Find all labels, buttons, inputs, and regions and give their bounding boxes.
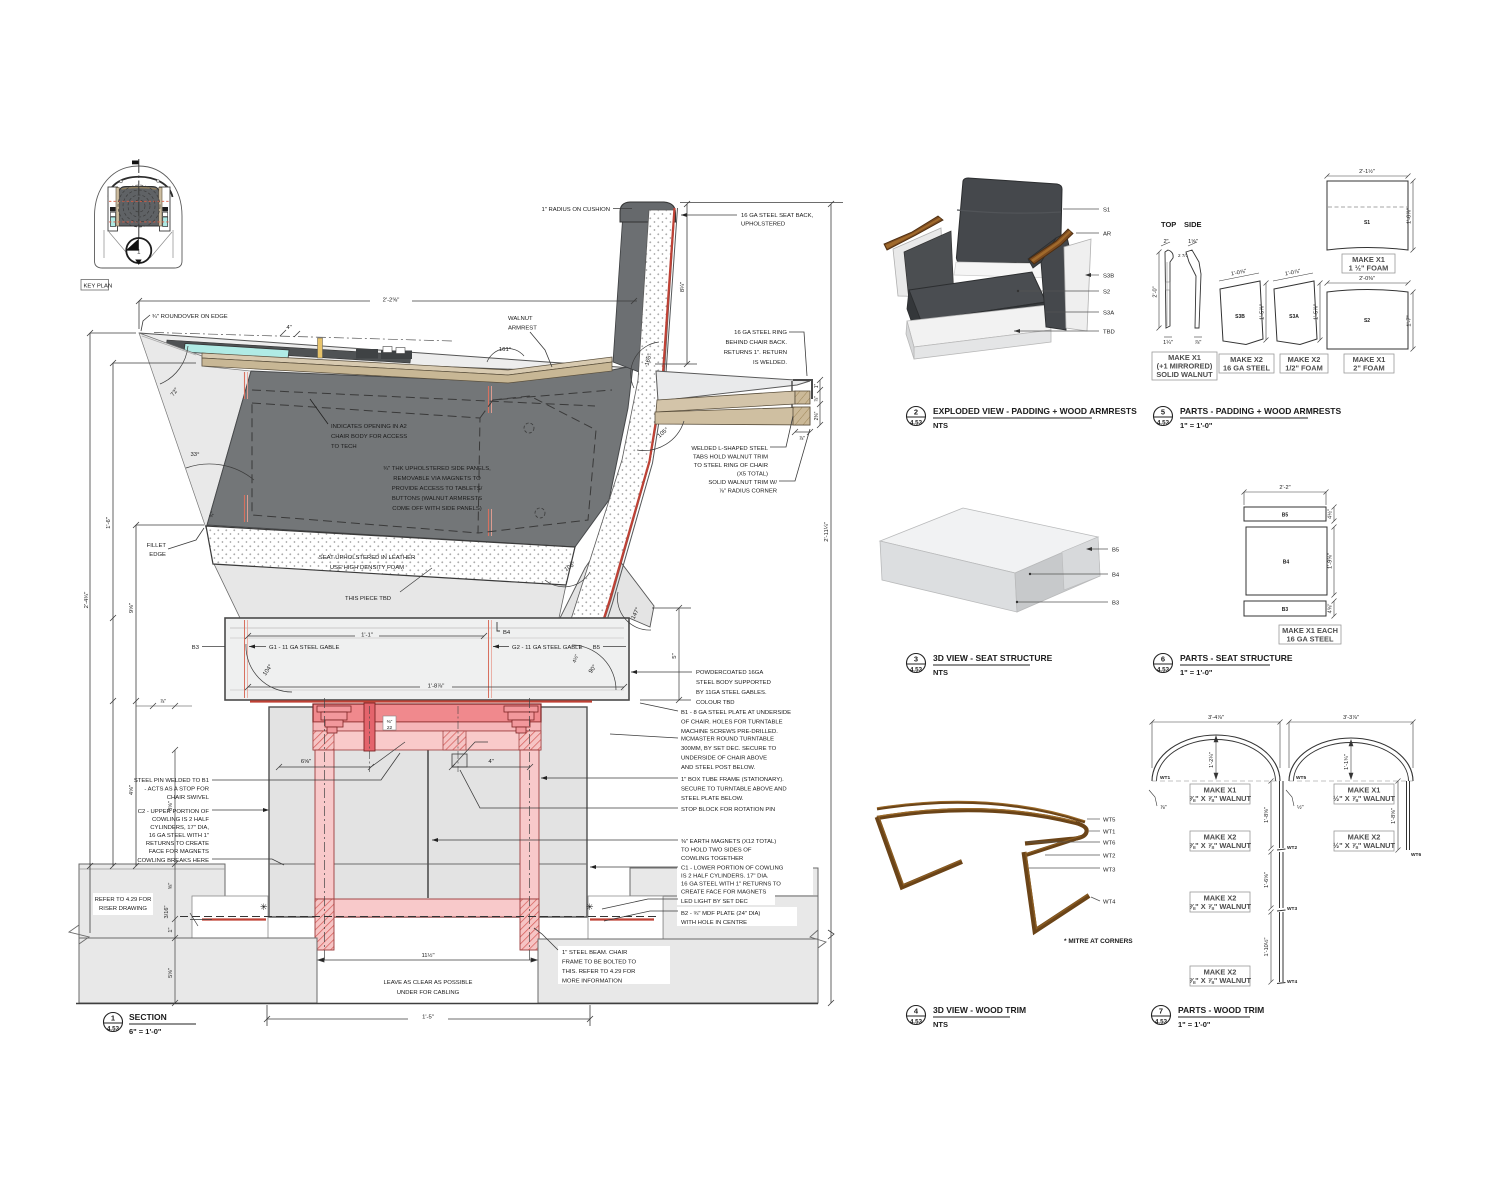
svg-text:TBD: TBD <box>1103 330 1115 336</box>
svg-text:CREATE FACE FOR MAGNETS: CREATE FACE FOR MAGNETS <box>681 890 766 896</box>
svg-text:1'-10½": 1'-10½" <box>1263 938 1270 957</box>
svg-text:PARTS - PADDING + WOOD ARMREST: PARTS - PADDING + WOOD ARMRESTS <box>1180 406 1341 416</box>
svg-text:C1 - LOWER PORTION OF COWLING: C1 - LOWER PORTION OF COWLING <box>681 866 784 872</box>
svg-text:4.53: 4.53 <box>910 1019 923 1026</box>
svg-text:RETURNS TO CREATE: RETURNS TO CREATE <box>146 841 209 847</box>
svg-text:½" X ⅞" WALNUT: ½" X ⅞" WALNUT <box>1333 841 1396 850</box>
svg-text:1'-9⅝": 1'-9⅝" <box>1328 553 1334 569</box>
svg-text:B4: B4 <box>503 630 511 636</box>
svg-text:⅞" X ⅞" WALNUT: ⅞" X ⅞" WALNUT <box>1189 794 1252 803</box>
svg-text:1'-8⅝": 1'-8⅝" <box>1264 807 1270 823</box>
svg-text:LEAVE AS CLEAR AS POSSIBLE: LEAVE AS CLEAR AS POSSIBLE <box>384 980 473 986</box>
svg-text:⅞" X ⅞" WALNUT: ⅞" X ⅞" WALNUT <box>1189 976 1252 985</box>
svg-text:WALNUT: WALNUT <box>508 316 533 322</box>
svg-text:LED LIGHT BY SET DEC: LED LIGHT BY SET DEC <box>681 899 749 905</box>
svg-text:SOLID WALNUT: SOLID WALNUT <box>1156 370 1213 379</box>
svg-text:2'-0⅜": 2'-0⅜" <box>1359 276 1375 282</box>
svg-text:3/16": 3/16" <box>164 906 170 919</box>
svg-text:COLOUR TBD: COLOUR TBD <box>696 700 735 706</box>
svg-text:B5: B5 <box>1112 548 1120 554</box>
svg-text:NTS: NTS <box>933 668 948 677</box>
svg-text:✳: ✳ <box>260 902 268 912</box>
svg-text:3D VIEW - WOOD TRIM: 3D VIEW - WOOD TRIM <box>933 1005 1026 1015</box>
svg-text:S3A: S3A <box>1289 314 1299 320</box>
svg-text:STEEL PLATE BELOW.: STEEL PLATE BELOW. <box>681 796 744 802</box>
svg-text:4.53: 4.53 <box>910 667 923 674</box>
svg-text:3D VIEW - SEAT STRUCTURE: 3D VIEW - SEAT STRUCTURE <box>933 653 1053 663</box>
svg-text:TOP: TOP <box>1161 220 1176 229</box>
svg-text:STOP BLOCK FOR ROTATION PIN: STOP BLOCK FOR ROTATION PIN <box>681 807 775 813</box>
svg-text:B5: B5 <box>593 645 601 651</box>
svg-text:1/2" FOAM: 1/2" FOAM <box>1285 364 1323 373</box>
svg-text:WT3: WT3 <box>1103 868 1116 874</box>
svg-text:1" RADIUS ON CUSHION: 1" RADIUS ON CUSHION <box>541 207 610 213</box>
svg-text:4.53: 4.53 <box>107 1026 120 1033</box>
svg-text:4": 4" <box>488 759 493 765</box>
svg-text:BY 11GA STEEL GABLES.: BY 11GA STEEL GABLES. <box>696 690 767 696</box>
svg-text:✳: ✳ <box>586 902 594 912</box>
svg-text:4.53: 4.53 <box>910 420 923 427</box>
svg-text:COWLING BREAKS HERE: COWLING BREAKS HERE <box>137 858 209 864</box>
svg-text:B2 - ¾" MDF PLATE (24" DIA): B2 - ¾" MDF PLATE (24" DIA) <box>681 911 760 917</box>
svg-text:16 GA STEEL: 16 GA STEEL <box>1223 364 1270 373</box>
svg-text:SEAT UPHOLSTERED IN LEATHER: SEAT UPHOLSTERED IN LEATHER <box>319 555 416 561</box>
svg-text:MORE INFORMATION: MORE INFORMATION <box>562 979 622 985</box>
svg-text:IS 2 HALF CYLINDERS. 17" DIA.: IS 2 HALF CYLINDERS. 17" DIA. <box>681 874 769 880</box>
svg-text:WT6: WT6 <box>1411 852 1421 858</box>
svg-text:UNDER FOR CABLING: UNDER FOR CABLING <box>397 990 460 996</box>
svg-text:POWDERCOATED 16GA: POWDERCOATED 16GA <box>696 670 763 676</box>
svg-text:RISER DRAWING: RISER DRAWING <box>99 906 147 912</box>
svg-text:16 GA STEEL: 16 GA STEEL <box>1287 635 1334 644</box>
svg-text:3: 3 <box>914 655 918 664</box>
svg-text:3'-4⅞": 3'-4⅞" <box>1208 715 1224 721</box>
svg-text:4½": 4½" <box>1327 509 1334 519</box>
svg-text:WT6: WT6 <box>1103 841 1116 847</box>
svg-text:REFER TO 4.29 FOR: REFER TO 4.29 FOR <box>95 897 152 903</box>
svg-text:EDGE: EDGE <box>149 552 166 558</box>
svg-text:STEEL BODY SUPPORTED: STEEL BODY SUPPORTED <box>696 680 771 686</box>
svg-text:COME OFF WITH SIDE PANELS): COME OFF WITH SIDE PANELS) <box>392 506 482 512</box>
svg-text:16 GA STEEL WITH 1" RETURNS TO: 16 GA STEEL WITH 1" RETURNS TO <box>681 882 781 888</box>
svg-text:UPHOLSTERED: UPHOLSTERED <box>741 222 785 228</box>
svg-text:1" = 1'-0": 1" = 1'-0" <box>1178 1020 1211 1029</box>
svg-text:1" = 1'-0": 1" = 1'-0" <box>1180 668 1213 677</box>
svg-text:2⅜": 2⅜" <box>814 411 820 420</box>
svg-text:WT4: WT4 <box>1103 900 1116 906</box>
svg-text:⅞": ⅞" <box>1195 340 1202 346</box>
svg-text:5: 5 <box>1161 408 1165 417</box>
svg-text:1: 1 <box>111 1014 115 1023</box>
svg-text:G1 - 11 GA STEEL GABLE: G1 - 11 GA STEEL GABLE <box>269 645 339 651</box>
svg-text:161°: 161° <box>499 347 511 353</box>
svg-text:16 GA STEEL RING: 16 GA STEEL RING <box>734 330 787 336</box>
svg-text:COWLING TOGETHER: COWLING TOGETHER <box>681 856 743 862</box>
svg-text:⅞": ⅞" <box>160 699 166 705</box>
svg-text:1": 1" <box>168 927 174 932</box>
svg-text:2: 2 <box>914 408 918 417</box>
svg-text:WT3: WT3 <box>1287 906 1297 912</box>
svg-text:SECTION: SECTION <box>129 1012 167 1022</box>
svg-text:* MITRE AT CORNERS: * MITRE AT CORNERS <box>1064 938 1133 945</box>
svg-text:FACE FOR MAGNETS: FACE FOR MAGNETS <box>149 849 209 855</box>
svg-text:2'-2⅝": 2'-2⅝" <box>383 298 400 304</box>
svg-text:⅞" X ⅞" WALNUT: ⅞" X ⅞" WALNUT <box>1189 841 1252 850</box>
svg-text:2" FOAM: 2" FOAM <box>1353 364 1384 373</box>
svg-text:300MM, BY SET DEC. SECURE TO: 300MM, BY SET DEC. SECURE TO <box>681 746 777 752</box>
svg-text:SOLID WALNUT TRIM W/: SOLID WALNUT TRIM W/ <box>708 480 777 486</box>
svg-text:NTS: NTS <box>933 1020 948 1029</box>
svg-text:1'-1": 1'-1" <box>361 633 373 639</box>
svg-text:⅜" EARTH MAGNETS (X12 TOTAL): ⅜" EARTH MAGNETS (X12 TOTAL) <box>681 839 776 845</box>
svg-text:TABS HOLD WALNUT TRIM: TABS HOLD WALNUT TRIM <box>693 455 768 461</box>
svg-text:BUTTONS (WALNUT ARMRESTS: BUTTONS (WALNUT ARMRESTS <box>392 496 482 502</box>
svg-text:⅞": ⅞" <box>799 436 805 442</box>
svg-text:C2 - UPPER PORTION OF: C2 - UPPER PORTION OF <box>138 809 210 815</box>
svg-text:OF CHAIR. HOLES FOR TURNTABLE: OF CHAIR. HOLES FOR TURNTABLE <box>681 720 783 726</box>
svg-text:TO TECH: TO TECH <box>331 444 357 450</box>
svg-text:PARTS - SEAT STRUCTURE: PARTS - SEAT STRUCTURE <box>1180 653 1293 663</box>
svg-text:S3B: S3B <box>1235 314 1245 320</box>
svg-text:1'-5⅞": 1'-5⅞" <box>1314 304 1320 320</box>
svg-text:1'-5": 1'-5" <box>422 1015 434 1021</box>
svg-text:B3: B3 <box>192 645 200 651</box>
svg-text:B5: B5 <box>1282 513 1289 519</box>
svg-text:1" = 1'-0": 1" = 1'-0" <box>1180 421 1213 430</box>
svg-text:9⅝": 9⅝" <box>129 603 135 613</box>
svg-text:4.53: 4.53 <box>1157 667 1170 674</box>
svg-text:WT1: WT1 <box>1103 830 1115 836</box>
svg-text:USE HIGH DENSITY FOAM: USE HIGH DENSITY FOAM <box>330 565 404 571</box>
svg-text:FRAME TO BE BOLTED TO: FRAME TO BE BOLTED TO <box>562 960 637 966</box>
svg-text:(X5 TOTAL): (X5 TOTAL) <box>737 472 768 478</box>
svg-text:⅞": ⅞" <box>814 396 820 402</box>
svg-text:1" STEEL BEAM. CHAIR: 1" STEEL BEAM. CHAIR <box>562 950 627 956</box>
svg-text:4⅝": 4⅝" <box>1328 604 1334 614</box>
svg-text:1'-1¾": 1'-1¾" <box>1344 754 1350 770</box>
svg-text:½" X ⅞" WALNUT: ½" X ⅞" WALNUT <box>1333 794 1396 803</box>
svg-text:WT4: WT4 <box>1287 979 1297 985</box>
svg-text:5": 5" <box>672 653 678 658</box>
svg-text:SIDE: SIDE <box>1184 220 1202 229</box>
svg-text:1'-5⅞": 1'-5⅞" <box>1260 304 1266 320</box>
svg-text:B3: B3 <box>1282 607 1289 613</box>
svg-text:3'-3⅞": 3'-3⅞" <box>1343 715 1359 721</box>
svg-text:STEEL PIN WELDED TO B1: STEEL PIN WELDED TO B1 <box>134 778 209 784</box>
svg-text:1": 1" <box>814 384 820 389</box>
svg-text:16 GA STEEL SEAT BACK,: 16 GA STEEL SEAT BACK, <box>741 213 814 219</box>
svg-text:REMOVABLE VIA MAGNETS TO: REMOVABLE VIA MAGNETS TO <box>393 476 481 482</box>
svg-text:22: 22 <box>387 725 393 731</box>
svg-text:⅞" RADIUS CORNER: ⅞" RADIUS CORNER <box>719 489 777 495</box>
svg-text:S1: S1 <box>1103 208 1110 214</box>
svg-text:S2: S2 <box>1364 318 1370 324</box>
svg-text:ARMREST: ARMREST <box>508 326 537 332</box>
svg-text:B3: B3 <box>1112 601 1120 607</box>
svg-text:1'-0⅞": 1'-0⅞" <box>1407 208 1413 224</box>
svg-text:8¼": 8¼" <box>680 282 686 292</box>
svg-text:1'-8⅞": 1'-8⅞" <box>428 684 445 690</box>
svg-text:S3B: S3B <box>1103 274 1114 280</box>
svg-text:WT1: WT1 <box>1160 775 1170 781</box>
svg-text:6⅝": 6⅝" <box>301 759 311 765</box>
svg-text:KEY PLAN: KEY PLAN <box>84 283 113 289</box>
svg-text:CYLINDERS, 17" DIA,: CYLINDERS, 17" DIA, <box>150 825 209 831</box>
svg-text:B4: B4 <box>1283 560 1290 566</box>
svg-text:AR: AR <box>1103 232 1111 238</box>
svg-text:½": ½" <box>1297 804 1304 811</box>
svg-text:IS WELDED.: IS WELDED. <box>753 360 787 366</box>
svg-text:AND STEEL POST BELOW.: AND STEEL POST BELOW. <box>681 765 756 771</box>
svg-text:2'-4¾": 2'-4¾" <box>84 592 90 609</box>
svg-text:G2 - 11 GA STEEL GABLE: G2 - 11 GA STEEL GABLE <box>512 645 582 651</box>
svg-text:1'-6⅝": 1'-6⅝" <box>1264 872 1270 888</box>
svg-text:PARTS - WOOD TRIM: PARTS - WOOD TRIM <box>1178 1005 1264 1015</box>
svg-text:WITH HOLE IN CENTRE: WITH HOLE IN CENTRE <box>681 920 747 926</box>
svg-text:CHAIR SWIVEL: CHAIR SWIVEL <box>167 795 210 801</box>
svg-text:¾" THK UPHOLSTERED SIDE PANELS: ¾" THK UPHOLSTERED SIDE PANELS, <box>383 466 491 472</box>
svg-text:MCMASTER ROUND TURNTABLE: MCMASTER ROUND TURNTABLE <box>681 737 774 743</box>
svg-text:4.53: 4.53 <box>1155 1019 1168 1026</box>
svg-text:2'-1½": 2'-1½" <box>1359 168 1375 175</box>
svg-text:S3A: S3A <box>1103 311 1114 317</box>
svg-text:1'-6": 1'-6" <box>106 517 112 529</box>
svg-text:INDICATES OPENING IN A2: INDICATES OPENING IN A2 <box>331 424 407 430</box>
svg-text:UNDERSIDE OF CHAIR ABOVE: UNDERSIDE OF CHAIR ABOVE <box>681 756 767 762</box>
svg-text:THIS. REFER TO 4.29 FOR: THIS. REFER TO 4.29 FOR <box>562 969 635 975</box>
svg-text:4⅝": 4⅝" <box>129 785 135 795</box>
svg-text:1" BOX TUBE FRAME (STATIONARY): 1" BOX TUBE FRAME (STATIONARY). <box>681 777 784 783</box>
svg-text:TO STEEL RING OF CHAIR: TO STEEL RING OF CHAIR <box>694 463 768 469</box>
svg-text:⅝": ⅝" <box>168 883 174 890</box>
svg-text:PROVIDE ACCESS TO TABLETS/: PROVIDE ACCESS TO TABLETS/ <box>392 486 483 492</box>
svg-text:FILLET: FILLET <box>147 543 167 549</box>
svg-text:NTS: NTS <box>933 421 948 430</box>
svg-text:COWLING IS 2 HALF: COWLING IS 2 HALF <box>152 817 209 823</box>
svg-text:EXPLODED VIEW - PADDING + WOOD: EXPLODED VIEW - PADDING + WOOD ARMRESTS <box>933 406 1137 416</box>
svg-text:6" = 1'-0": 6" = 1'-0" <box>129 1027 162 1036</box>
svg-text:WT5: WT5 <box>1103 818 1116 824</box>
svg-text:⅜": ⅜" <box>387 719 393 725</box>
svg-text:6: 6 <box>1161 655 1165 664</box>
svg-text:B4: B4 <box>1112 573 1120 579</box>
svg-text:SECURE TO TURNTABLE ABOVE AND: SECURE TO TURNTABLE ABOVE AND <box>681 787 787 793</box>
svg-text:WT2: WT2 <box>1103 854 1115 860</box>
svg-text:2'-2": 2'-2" <box>1279 485 1290 491</box>
svg-text:2'-0": 2'-0" <box>1153 286 1159 297</box>
svg-text:THIS PIECE TBD: THIS PIECE TBD <box>345 596 391 602</box>
svg-text:1'-2¼": 1'-2¼" <box>1209 752 1215 768</box>
svg-text:S2: S2 <box>1103 290 1110 296</box>
svg-text:WT5: WT5 <box>1296 775 1306 781</box>
svg-text:RETURNS 1". RETURN: RETURNS 1". RETURN <box>724 350 787 356</box>
svg-text:B1 - 8 GA STEEL PLATE AT UNDER: B1 - 8 GA STEEL PLATE AT UNDERSIDE <box>681 710 791 716</box>
svg-text:1'-8⅝": 1'-8⅝" <box>1391 808 1397 824</box>
svg-text:WT2: WT2 <box>1287 845 1297 851</box>
svg-text:33°: 33° <box>191 452 200 458</box>
svg-text:2'-11¼": 2'-11¼" <box>824 522 830 541</box>
svg-text:MACHINE SCREWS PRE-DRILLED.: MACHINE SCREWS PRE-DRILLED. <box>681 729 778 735</box>
svg-text:1¼": 1¼" <box>1163 340 1173 346</box>
svg-text:1'-7": 1'-7" <box>1407 315 1413 326</box>
svg-text:5⅝": 5⅝" <box>168 968 174 978</box>
svg-text:WELDED L-SHAPED STEEL: WELDED L-SHAPED STEEL <box>691 446 768 452</box>
svg-text:11½": 11½" <box>421 952 434 959</box>
svg-text:1 ½" FOAM: 1 ½" FOAM <box>1349 264 1389 273</box>
svg-text:16 GA STEEL WITH 1": 16 GA STEEL WITH 1" <box>149 833 209 839</box>
svg-text:CHAIR BODY FOR ACCESS: CHAIR BODY FOR ACCESS <box>331 434 407 440</box>
svg-text:TO HOLD TWO SIDES OF: TO HOLD TWO SIDES OF <box>681 848 752 854</box>
svg-text:BEHIND CHAIR BACK.: BEHIND CHAIR BACK. <box>725 340 787 346</box>
svg-text:4.53: 4.53 <box>1157 420 1170 427</box>
svg-text:S1: S1 <box>1364 220 1370 226</box>
svg-text:4": 4" <box>286 325 291 331</box>
svg-text:2": 2" <box>1163 239 1168 245</box>
svg-text:¾" ROUNDOVER ON EDGE: ¾" ROUNDOVER ON EDGE <box>152 314 228 320</box>
svg-text:⅞": ⅞" <box>1160 805 1167 811</box>
svg-text:⅞" X ⅞" WALNUT: ⅞" X ⅞" WALNUT <box>1189 902 1252 911</box>
svg-text:7: 7 <box>1159 1007 1163 1016</box>
svg-text:- ACTS AS A STOP FOR: - ACTS AS A STOP FOR <box>144 787 209 793</box>
